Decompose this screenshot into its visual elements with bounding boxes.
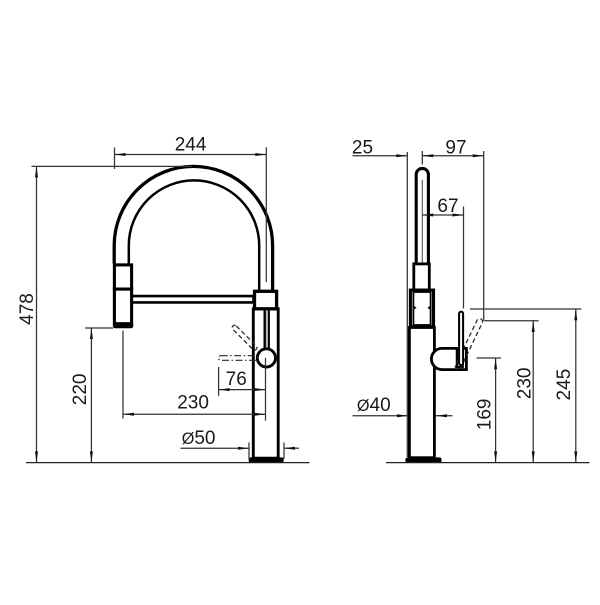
svg-text:Ø50: Ø50	[182, 428, 216, 449]
svg-text:97: 97	[445, 137, 466, 158]
svg-text:25: 25	[352, 137, 373, 158]
svg-text:244: 244	[175, 134, 207, 155]
svg-text:67: 67	[437, 196, 458, 217]
svg-text:220: 220	[70, 374, 91, 406]
svg-text:230: 230	[515, 368, 536, 400]
svg-text:230: 230	[177, 392, 209, 413]
svg-text:Ø40: Ø40	[357, 395, 391, 416]
svg-text:169: 169	[475, 399, 496, 431]
svg-text:478: 478	[17, 293, 38, 325]
svg-text:76: 76	[226, 369, 247, 390]
svg-text:245: 245	[554, 369, 575, 401]
